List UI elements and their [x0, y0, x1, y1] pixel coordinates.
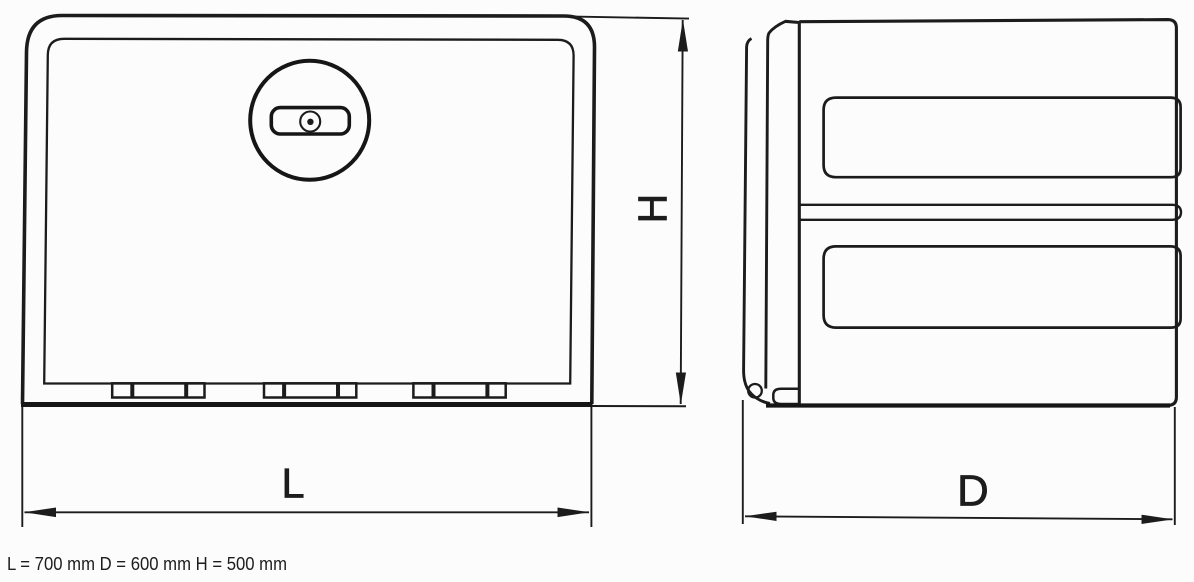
svg-text:H: H: [629, 194, 675, 224]
svg-text:L = 700 mm D = 600 mm H = 500: L = 700 mm D = 600 mm H = 500 mm: [7, 554, 287, 574]
svg-text:D: D: [957, 467, 989, 516]
svg-text:L: L: [282, 460, 305, 507]
